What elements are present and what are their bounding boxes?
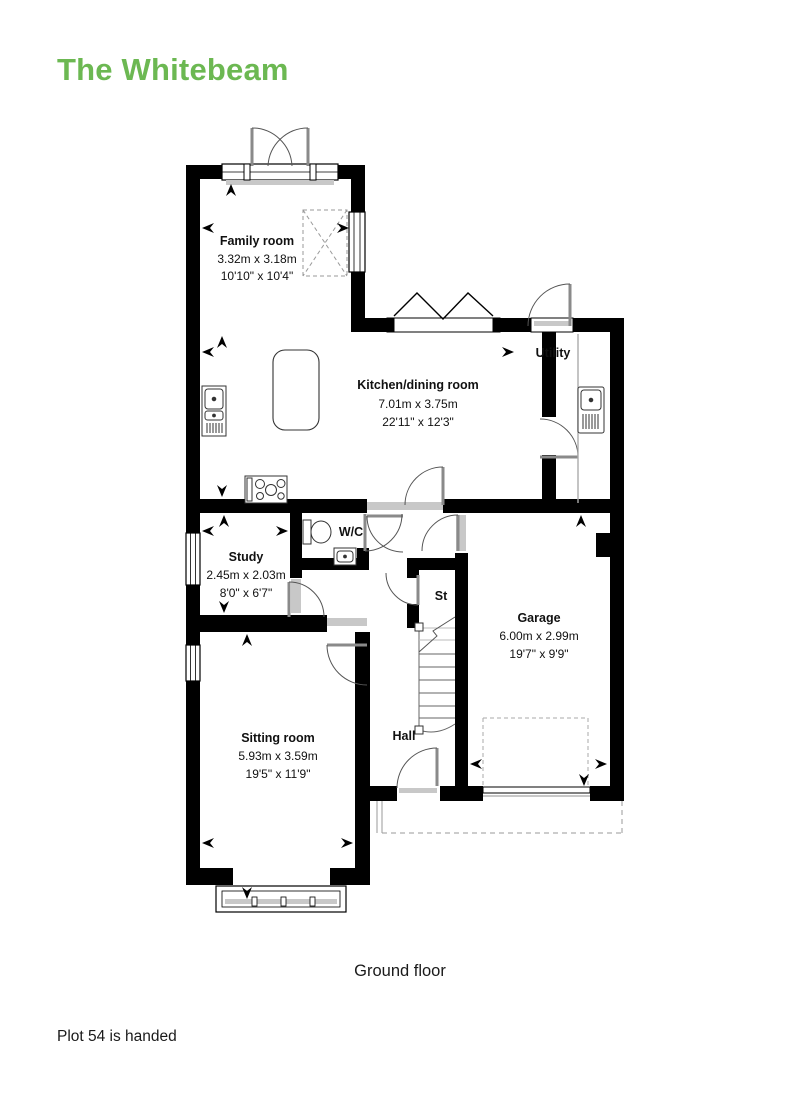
wall-segment — [407, 558, 455, 570]
front-door — [397, 748, 437, 788]
wall-segment — [370, 786, 397, 801]
utility-door-threshold — [531, 318, 573, 332]
wall-segment — [186, 681, 200, 885]
wall-segment — [186, 165, 200, 533]
kitchen-hall-door-a — [405, 467, 443, 505]
toilet — [303, 520, 331, 544]
utility-sink — [578, 387, 604, 433]
utility-internal-door — [540, 419, 578, 457]
hob — [245, 476, 287, 503]
window-mullion — [310, 897, 315, 906]
dimension-arrow — [202, 526, 214, 536]
door-sill — [291, 579, 301, 613]
wall-segment — [455, 553, 468, 786]
window-mullion — [281, 897, 286, 906]
site-dashed-outline — [377, 801, 622, 833]
kitchen-sink — [202, 386, 226, 436]
wall-segment — [355, 632, 370, 868]
kitchen-hall-door-b — [367, 516, 403, 552]
rooflight — [303, 210, 347, 276]
study-metric: 2.45m x 2.03m — [206, 568, 285, 582]
wall-segment — [351, 318, 390, 332]
wall-segment — [330, 868, 370, 885]
window-mullion — [252, 897, 257, 906]
wall-segment — [542, 332, 556, 417]
wall-segment — [443, 499, 624, 513]
sitting-room-label: Sitting room — [241, 731, 315, 745]
doors — [252, 128, 578, 788]
family-room-imperial: 10'10" x 10'4" — [221, 269, 294, 283]
dimension-arrow — [576, 515, 586, 527]
front-door-threshold — [399, 788, 437, 793]
garage-vehicle-door — [483, 787, 590, 796]
sitting-window — [186, 645, 200, 681]
dimension-arrow — [219, 601, 229, 613]
kitchen-metric: 7.01m x 3.75m — [378, 397, 457, 411]
wall-segment — [351, 165, 365, 212]
wall-segment — [440, 786, 483, 801]
dimension-arrow — [341, 838, 353, 848]
study-imperial: 8'0" x 6'7" — [220, 586, 272, 600]
family-room-label: Family room — [220, 234, 294, 248]
dimension-arrow — [502, 347, 514, 357]
dimension-arrow — [217, 336, 227, 348]
wall-segment — [610, 318, 624, 801]
door-sill — [226, 180, 334, 185]
dimension-arrow — [242, 634, 252, 646]
wall-pier — [596, 533, 610, 557]
wall-segment — [186, 615, 327, 632]
plot-footnote: Plot 54 is handed — [57, 1028, 177, 1046]
wash-basin — [334, 548, 356, 565]
garage-door-dashed-outline — [483, 718, 588, 786]
dimension-arrow — [217, 485, 227, 497]
family-room-metric: 3.32m x 3.18m — [217, 252, 296, 266]
family-window — [349, 212, 365, 272]
dimension-arrow — [202, 223, 214, 233]
wall-segment — [186, 868, 233, 885]
dimension-arrow — [226, 184, 236, 196]
hall-garage-door — [422, 515, 458, 551]
garage-label: Garage — [517, 611, 560, 625]
stairs — [415, 617, 455, 734]
dimension-arrow — [595, 759, 607, 769]
kitchen-island — [273, 350, 319, 430]
dimension-arrow — [202, 838, 214, 848]
dimension-arrow — [470, 759, 482, 769]
garage-metric: 6.00m x 2.99m — [499, 629, 578, 643]
utility-label: Utility — [536, 346, 571, 360]
hall-label: Hall — [393, 729, 416, 743]
french-door-frame — [222, 164, 338, 185]
store-label: St — [435, 589, 448, 603]
wall-segment — [186, 165, 224, 179]
dimension-arrow — [219, 515, 229, 527]
bifold-door — [387, 293, 500, 332]
wc-label: W/C — [339, 525, 363, 539]
kitchen-label: Kitchen/dining room — [357, 378, 479, 392]
wall-segment — [590, 786, 624, 801]
study-window — [186, 533, 200, 585]
door-sill — [327, 618, 367, 626]
window-mullion — [244, 164, 250, 180]
study-label: Study — [229, 550, 264, 564]
sitting-room-imperial: 19'5" x 11'9" — [246, 767, 311, 781]
window-mullion — [310, 164, 316, 180]
garage-imperial: 19'7" x 9'9" — [509, 647, 568, 661]
dimension-arrow — [202, 347, 214, 357]
dimension-arrow — [276, 526, 288, 536]
floor-plan: Family room 3.32m x 3.18m 10'10" x 10'4"… — [0, 0, 800, 1100]
sitting-room-metric: 5.93m x 3.59m — [238, 749, 317, 763]
kitchen-imperial: 22'11" x 12'3" — [382, 415, 454, 429]
french-door-right — [268, 128, 308, 166]
bay-window — [216, 886, 346, 912]
floor-caption: Ground floor — [0, 962, 800, 981]
wall-segment — [290, 513, 302, 578]
french-door-left — [252, 128, 292, 166]
wall-segment — [497, 318, 531, 332]
